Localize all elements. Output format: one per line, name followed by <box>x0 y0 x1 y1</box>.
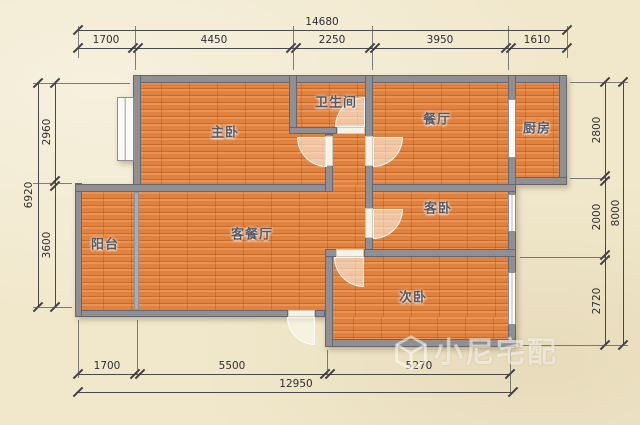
dim-left-total: 6920 <box>23 182 35 209</box>
entry-door-sill <box>288 310 315 317</box>
dim-right-seg-3: 2720 <box>591 288 603 315</box>
floor-plan-canvas: 主卧 卫生间 餐厅 厨房 客卧 客餐厅 阳台 次卧 14680 1700 445… <box>0 0 640 425</box>
bathroom-door-sill <box>337 127 365 134</box>
dim-line-top-segments <box>78 48 567 49</box>
wall-balcony-divider <box>134 192 139 310</box>
wall-kitchen-bottom <box>508 177 567 185</box>
dim-top-seg-5: 1610 <box>524 34 551 46</box>
dim-bottom-seg-2: 5500 <box>219 360 246 372</box>
dim-bottom-seg-1: 1700 <box>94 360 121 372</box>
watermark-cube-icon <box>393 334 429 370</box>
dim-right-total: 8000 <box>610 200 622 227</box>
dim-line-right-total <box>623 82 624 345</box>
dim-right-seg-1: 2800 <box>591 117 603 144</box>
wall-living-bottom-stub <box>315 310 325 317</box>
room-label-kitchen: 厨房 <box>523 118 551 137</box>
master-bedroom-window <box>117 97 134 161</box>
room-label-balcony: 阳台 <box>91 234 119 253</box>
watermark-brand-text: 小尼宅配 <box>434 338 558 367</box>
wall-dining-bottom <box>365 184 516 192</box>
dim-line-top-total <box>78 30 567 31</box>
room-label-living-dining: 客餐厅 <box>231 224 273 243</box>
dim-left-seg-1: 2960 <box>41 119 53 146</box>
room-label-second-bedroom: 次卧 <box>399 287 427 306</box>
dim-top-seg-2: 4450 <box>201 34 228 46</box>
dim-line-left-segments <box>55 83 56 307</box>
wall-living-bottom <box>75 310 288 317</box>
wall-kitchen-right <box>559 75 567 185</box>
dim-bottom-total: 12950 <box>279 378 312 390</box>
dim-line-right-segments <box>605 82 606 345</box>
room-label-dining-room: 餐厅 <box>423 109 451 128</box>
dim-top-total: 14680 <box>305 16 338 28</box>
room-label-guest-bedroom: 客卧 <box>424 198 452 217</box>
dim-right-seg-2: 2000 <box>591 204 603 231</box>
dim-top-seg-1: 1700 <box>93 34 120 46</box>
dim-line-bottom-total <box>78 392 513 393</box>
kitchen-pass-window <box>508 99 516 158</box>
wall-bathroom-bottom <box>289 127 337 134</box>
wall-master-bottom <box>75 184 333 192</box>
wall-bathroom-left <box>289 75 297 134</box>
room-label-master-bedroom: 主卧 <box>211 122 239 141</box>
watermark: 小尼宅配 <box>393 334 558 370</box>
dim-top-seg-3: 2250 <box>319 34 346 46</box>
wall-balcony-left <box>75 183 82 317</box>
guest-bedroom-door-leaf <box>365 208 373 238</box>
dim-left-seg-2: 3600 <box>41 232 53 259</box>
wall-top <box>133 75 567 83</box>
dining-door-leaf <box>365 136 373 166</box>
dim-line-left-total <box>38 83 39 307</box>
guest-bedroom-window <box>508 194 516 232</box>
wall-master-left <box>133 75 141 192</box>
room-label-bathroom: 卫生间 <box>315 92 357 111</box>
dim-top-seg-4: 3950 <box>427 34 454 46</box>
second-bedroom-window <box>508 272 516 325</box>
dim-line-bottom-segments <box>78 374 510 375</box>
second-bedroom-door-leaf <box>336 249 364 257</box>
wall-second-bedroom-left <box>325 249 333 347</box>
wall-bedrooms-divider-right <box>364 249 516 257</box>
